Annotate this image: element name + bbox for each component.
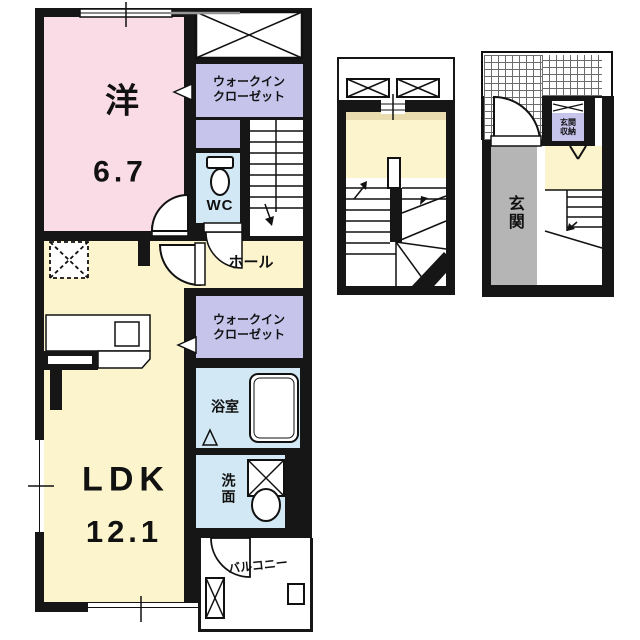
- room-western: [44, 17, 184, 231]
- label-wc: WC: [207, 197, 234, 215]
- balcony: [198, 538, 313, 632]
- staircase-3f: [250, 120, 303, 236]
- plan1f-stairwell: [545, 190, 602, 285]
- label-bath: 浴室: [211, 398, 239, 415]
- plan1f-side-strip: [595, 98, 602, 146]
- label-ldk-size: 12.1: [86, 513, 162, 551]
- plan1f-porch-tiles-top: [542, 55, 602, 96]
- label-wic-upper: ウォークイン クローゼット: [213, 74, 285, 103]
- entrance-storage-door: [552, 101, 584, 113]
- label-western-size: 6.7: [93, 155, 147, 192]
- label-wic-lower: ウォークイン クローゼット: [213, 312, 285, 341]
- label-ldk: LDK: [82, 459, 170, 500]
- label-hall: ホール: [228, 254, 273, 272]
- label-wash: 洗面: [219, 473, 236, 505]
- floor-plan-canvas: 洋 6.7 ウォークイン クローゼット WC ホール ウォークイン クローゼット…: [0, 0, 640, 640]
- wic-upper-ext: [196, 120, 240, 148]
- entrance-step-strip: [537, 146, 545, 285]
- room-wash: [196, 455, 285, 528]
- plan2f-porch: [337, 57, 455, 102]
- plan2f-stairwell: [346, 178, 446, 286]
- label-western-room: 洋: [105, 81, 139, 122]
- plan1f-porch-tiles-left: [484, 55, 542, 140]
- plan2f-landing-step: [346, 112, 446, 120]
- label-entrance-storage: 玄関 収納: [560, 118, 576, 136]
- shaft-void: [196, 12, 302, 58]
- plan1f-landing: [545, 146, 602, 190]
- label-entrance: 玄関: [504, 195, 524, 231]
- plan2f-landing: [346, 112, 446, 178]
